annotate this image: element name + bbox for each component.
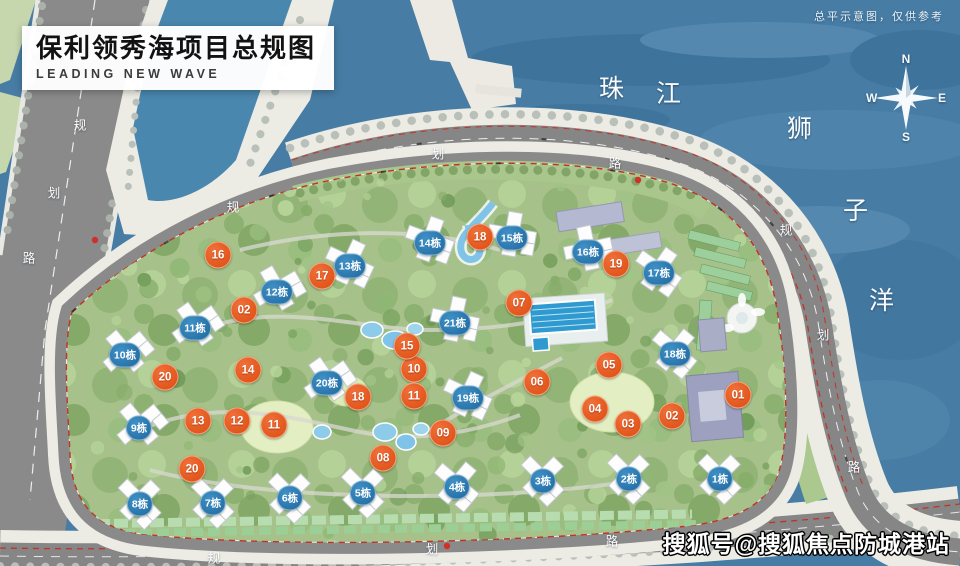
road-label: 划 (432, 144, 445, 163)
tree (556, 182, 565, 191)
tree (365, 375, 376, 386)
tree (294, 258, 301, 265)
tree (395, 408, 414, 427)
tree (482, 306, 490, 314)
unit-marker-13栋: 13栋 (334, 254, 366, 279)
tree (270, 365, 282, 377)
compass-e: E (938, 91, 946, 105)
tree (322, 201, 333, 212)
tree (656, 481, 673, 498)
tree (522, 358, 531, 367)
water-label: 子 (843, 191, 869, 227)
tree (518, 432, 533, 447)
tree (412, 472, 424, 484)
tree (550, 276, 559, 285)
tree (116, 384, 132, 400)
tree (301, 205, 312, 216)
tree (626, 316, 634, 324)
node-marker-17: 17 (309, 263, 336, 290)
node-marker-14: 14 (235, 357, 262, 384)
unit-marker-16栋: 16栋 (572, 240, 604, 265)
tree (236, 466, 243, 473)
node-marker-10: 10 (401, 356, 428, 383)
road-label: 规 (208, 548, 221, 566)
tree (253, 457, 269, 473)
road-label: 划 (426, 539, 439, 558)
node-marker-15: 15 (394, 333, 421, 360)
unit-marker-15栋: 15栋 (496, 226, 528, 251)
unit-marker-7栋: 7栋 (200, 491, 226, 516)
node-marker-16: 16 (205, 242, 232, 269)
node-marker-18: 18 (467, 224, 494, 251)
tree (364, 193, 371, 200)
unit-marker-3栋: 3栋 (530, 469, 556, 494)
unit-marker-21栋: 21栋 (439, 311, 471, 336)
node-marker-06: 06 (524, 369, 551, 396)
node-marker-19: 19 (603, 251, 630, 278)
tree (639, 426, 656, 443)
unit-marker-11栋: 11栋 (179, 316, 211, 341)
page-title: 保利领秀海项目总规图 (36, 34, 316, 64)
unit-marker-14栋: 14栋 (414, 231, 446, 256)
node-marker-02: 02 (659, 403, 686, 430)
tree (438, 192, 447, 201)
water-label: 洋 (869, 281, 895, 317)
node-marker-08: 08 (370, 445, 397, 472)
node-marker-02: 02 (231, 297, 258, 324)
tree (91, 441, 105, 455)
compass-n: N (902, 52, 911, 66)
tree (511, 392, 526, 407)
tree (762, 463, 769, 470)
road-label: 规 (74, 115, 87, 134)
tree (307, 301, 316, 310)
unit-marker-8栋: 8栋 (127, 492, 153, 517)
tree (571, 475, 578, 482)
node-marker-11: 11 (261, 412, 288, 439)
tree (170, 258, 190, 278)
tree (360, 415, 375, 430)
unit-marker-12栋: 12栋 (261, 280, 293, 305)
tree (631, 349, 650, 368)
tree (129, 472, 138, 481)
node-marker-13: 13 (185, 408, 212, 435)
node-marker-01: 01 (725, 382, 752, 409)
node-marker-03: 03 (615, 411, 642, 438)
unit-marker-20栋: 20栋 (311, 371, 343, 396)
node-marker-09: 09 (430, 420, 457, 447)
water-label: 狮 (787, 109, 813, 145)
node-marker-04: 04 (582, 396, 609, 423)
unit-marker-19栋: 19栋 (452, 386, 484, 411)
node-marker-11: 11 (401, 383, 428, 410)
compass-s: S (902, 130, 910, 144)
unit-marker-2栋: 2栋 (616, 467, 642, 492)
tree (243, 466, 252, 475)
tree (626, 269, 638, 281)
road-label: 划 (48, 183, 61, 202)
tree (753, 428, 767, 442)
water-label: 珠 (599, 69, 625, 105)
road-label: 路 (848, 457, 861, 476)
tree (577, 448, 587, 458)
road-label: 路 (606, 531, 619, 550)
road-label: 路 (609, 153, 622, 172)
tree (166, 347, 180, 361)
tree (139, 279, 158, 298)
tree (278, 200, 294, 216)
tree (184, 441, 193, 450)
unit-marker-18栋: 18栋 (659, 342, 691, 367)
tree (738, 472, 754, 488)
node-marker-07: 07 (506, 290, 533, 317)
master-plan-screenshot: N E S W 保利领秀海项目总规图 LEADING NEW WAVE 总平示意… (0, 0, 960, 566)
compass-w: W (866, 91, 877, 105)
page-subtitle: LEADING NEW WAVE (36, 67, 316, 81)
road-label: 路 (23, 248, 36, 267)
node-marker-12: 12 (224, 408, 251, 435)
tree (111, 316, 121, 326)
tree (543, 254, 557, 268)
road-label: 划 (817, 325, 830, 344)
tree (357, 349, 374, 366)
title-card: 保利领秀海项目总规图 LEADING NEW WAVE (22, 26, 334, 90)
compass: N E S W (866, 52, 946, 144)
tree (222, 327, 232, 337)
water-label: 江 (656, 74, 682, 110)
node-marker-20: 20 (179, 456, 206, 483)
unit-marker-10栋: 10栋 (109, 343, 141, 368)
disclaimer-note: 总平示意图，仅供参考 (814, 8, 944, 24)
tree (361, 340, 371, 350)
tree (333, 348, 348, 363)
tree (288, 329, 297, 338)
unit-marker-1栋: 1栋 (707, 467, 733, 492)
tree (383, 309, 401, 327)
unit-marker-17栋: 17栋 (643, 261, 675, 286)
tree (246, 491, 255, 500)
tree (486, 347, 494, 355)
watermark: 搜狐号@搜狐焦点防城港站 (663, 525, 950, 559)
tree (250, 223, 267, 240)
tree (382, 292, 396, 306)
tree (385, 369, 394, 378)
unit-marker-9栋: 9栋 (126, 416, 152, 441)
tree (487, 432, 505, 450)
road-label: 规 (780, 220, 793, 239)
tree (196, 286, 212, 302)
tree (436, 377, 445, 386)
tree (376, 178, 384, 186)
tree (640, 336, 651, 347)
node-marker-18: 18 (345, 384, 372, 411)
node-marker-20: 20 (152, 364, 179, 391)
unit-marker-4栋: 4栋 (444, 475, 470, 500)
tree (487, 456, 505, 474)
node-marker-05: 05 (596, 352, 623, 379)
tree (568, 268, 581, 281)
unit-marker-5栋: 5栋 (350, 481, 376, 506)
unit-marker-6栋: 6栋 (277, 486, 303, 511)
road-label: 规 (227, 197, 240, 216)
